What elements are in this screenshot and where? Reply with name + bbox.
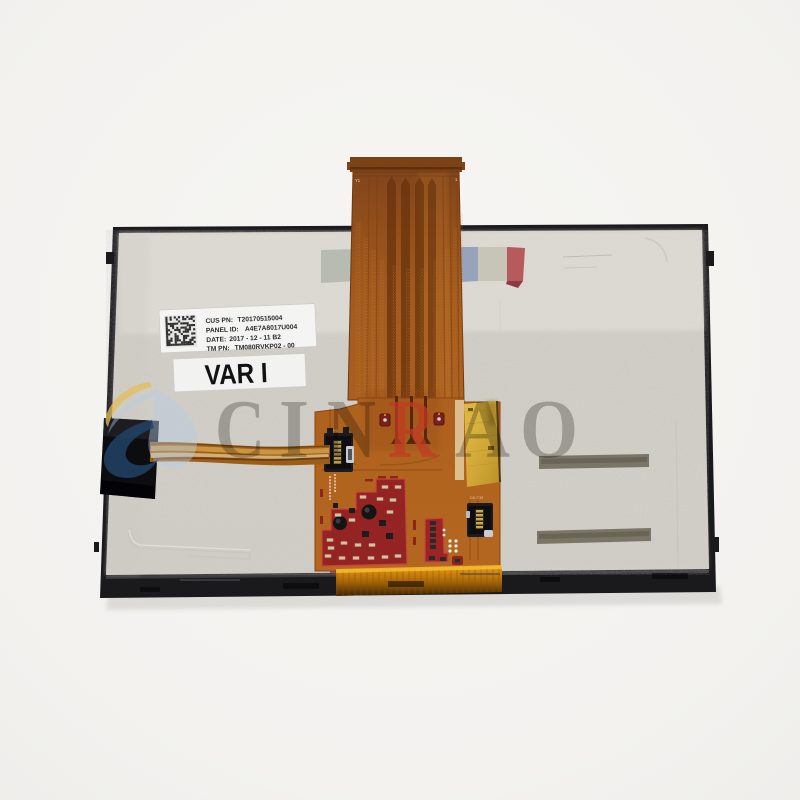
svg-text:TM PN:: TM PN: [207,345,230,353]
svg-text:PANEL ID:: PANEL ID: [206,326,239,334]
svg-text:C: C [215,383,265,476]
svg-text:I: I [279,383,309,476]
svg-text:R: R [388,383,437,476]
svg-text:A: A [455,383,510,476]
svg-text:CUS PN:: CUS PN: [205,317,233,325]
svg-text:Y1: Y1 [355,178,361,183]
svg-text:O: O [520,383,578,476]
svg-text:CK C19: CK C19 [470,496,483,500]
svg-text:DATE:: DATE: [206,336,226,344]
svg-text:N: N [327,383,376,476]
